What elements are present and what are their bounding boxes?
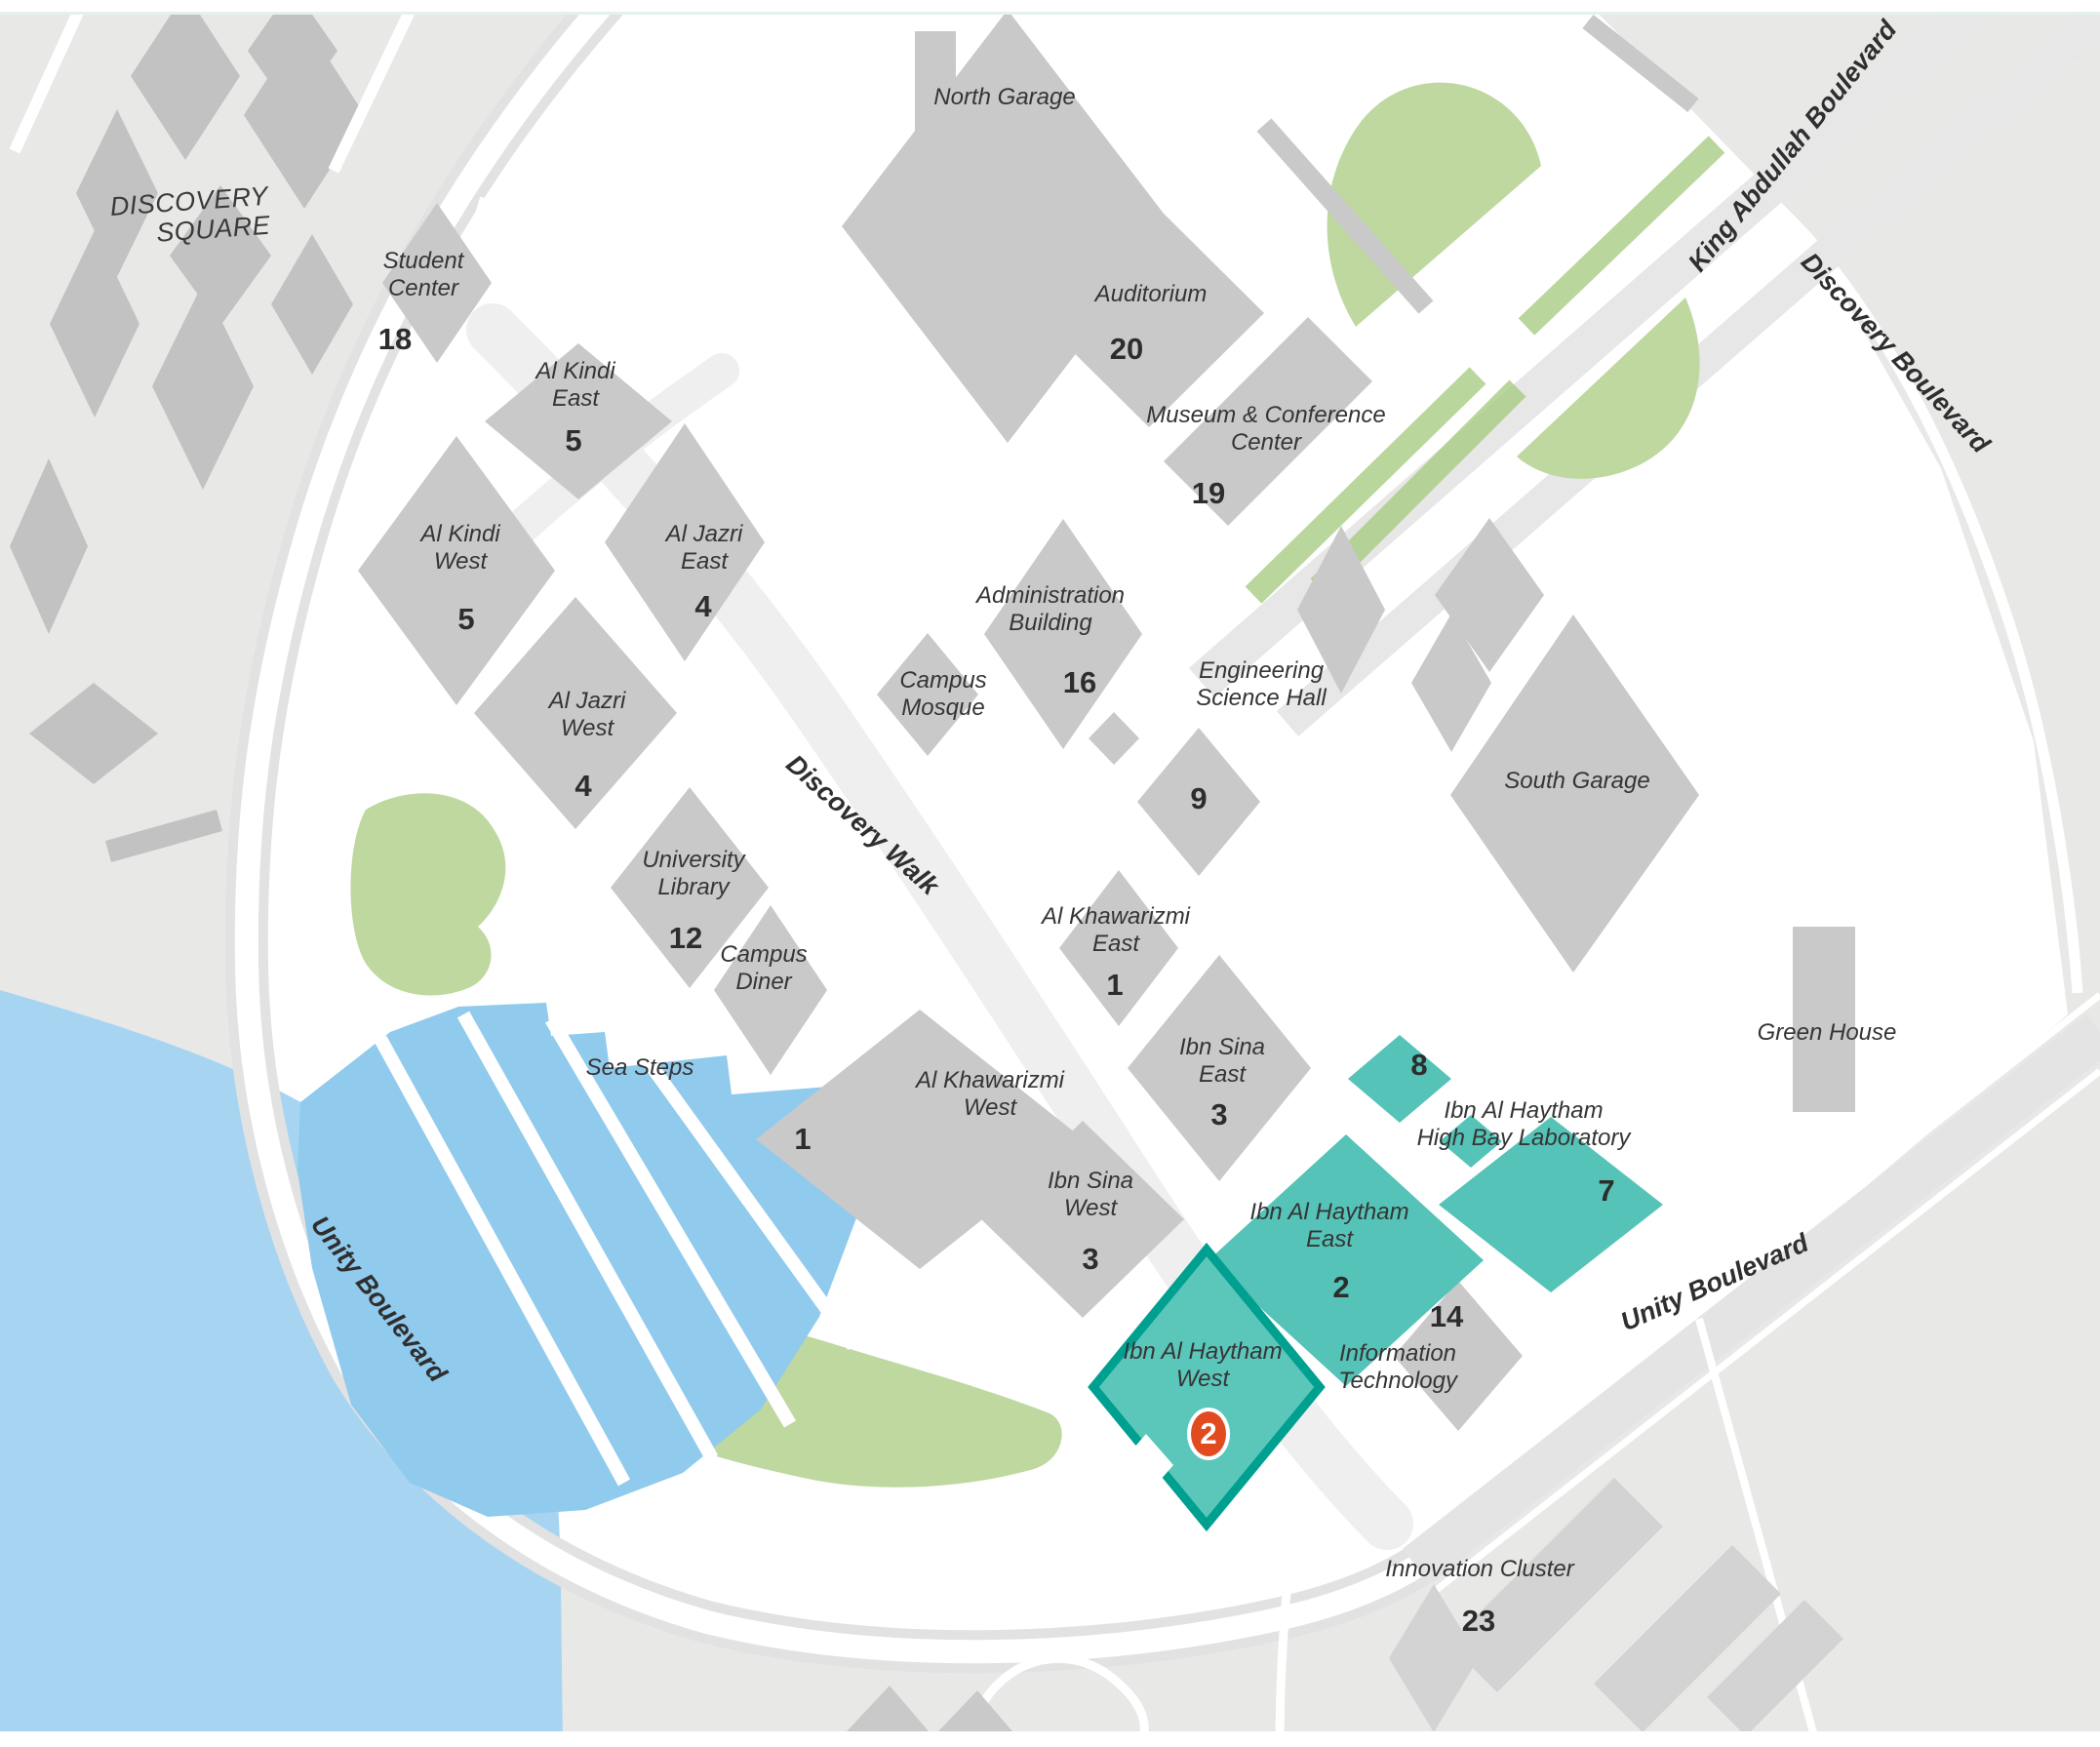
green-blob-west: [350, 793, 505, 995]
number-administration: 16: [1063, 665, 1096, 700]
label-museum-conference: Museum & Conference Center: [1146, 402, 1385, 457]
number-university-library: 12: [669, 921, 702, 956]
label-university-library: University Library: [642, 847, 744, 901]
number-student-center: 18: [378, 322, 412, 357]
number-engineering-science: 9: [1190, 781, 1207, 816]
label-engineering-science: Engineering Science Hall: [1196, 657, 1326, 712]
label-discovery-square: DISCOVERY SQUARE: [109, 182, 271, 252]
number-ibn-sina-east: 3: [1210, 1097, 1227, 1132]
number-high-bay-lab-7: 7: [1598, 1173, 1614, 1209]
bottom-margin: [0, 1731, 2100, 1747]
building-strip-north: [915, 31, 956, 212]
label-ibn-al-haytham-east: Ibn Al Haytham East: [1249, 1199, 1408, 1253]
selected-building-marker[interactable]: 2: [1187, 1408, 1230, 1460]
label-ibn-al-haytham-west: Ibn Al Haytham West: [1123, 1338, 1282, 1393]
label-green-house: Green House: [1758, 1019, 1897, 1047]
label-innovation-cluster: Innovation Cluster: [1385, 1556, 1573, 1583]
label-administration: Administration Building: [976, 582, 1125, 637]
number-al-khawarizmi-east: 1: [1106, 968, 1123, 1003]
number-auditorium: 20: [1110, 332, 1143, 367]
number-al-jazri-west: 4: [575, 769, 591, 804]
label-sea-steps: Sea Steps: [586, 1054, 694, 1082]
label-ibn-sina-west: Ibn Sina West: [1048, 1168, 1133, 1222]
number-museum-conference: 19: [1192, 476, 1225, 511]
label-al-jazri-west: Al Jazri West: [549, 688, 626, 742]
label-auditorium: Auditorium: [1095, 281, 1208, 308]
number-high-bay-lab-8: 8: [1410, 1048, 1427, 1083]
label-information-technology: Information Technology: [1338, 1340, 1457, 1395]
label-campus-diner: Campus Diner: [720, 941, 807, 996]
campus-map: DISCOVERY SQUARE King Abdullah Boulevard…: [0, 0, 2100, 1747]
label-north-garage: North Garage: [933, 84, 1075, 111]
label-al-khawarizmi-west: Al Khawarizmi West: [916, 1067, 1064, 1122]
label-ibn-sina-east: Ibn Sina East: [1179, 1034, 1265, 1089]
number-al-kindi-east: 5: [565, 423, 581, 458]
label-al-khawarizmi-east: Al Khawarizmi East: [1042, 903, 1190, 958]
number-al-kindi-west: 5: [457, 602, 474, 637]
top-border-line: [0, 12, 2100, 15]
number-information-technology: 14: [1430, 1299, 1463, 1334]
number-ibn-al-haytham-east: 2: [1332, 1270, 1349, 1305]
map-canvas: [0, 0, 2100, 1747]
label-al-kindi-west: Al Kindi West: [420, 521, 499, 576]
number-ibn-sina-west: 3: [1082, 1242, 1098, 1277]
label-south-garage: South Garage: [1504, 768, 1649, 795]
label-al-jazri-east: Al Jazri East: [666, 521, 743, 576]
number-al-khawarizmi-west: 1: [794, 1122, 811, 1157]
label-campus-mosque: Campus Mosque: [899, 667, 986, 722]
top-margin: [0, 0, 2100, 12]
number-innovation-cluster: 23: [1462, 1604, 1495, 1639]
label-al-kindi-east: Al Kindi East: [535, 358, 614, 413]
label-student-center: Student Center: [383, 248, 464, 302]
number-al-jazri-east: 4: [694, 589, 711, 624]
label-high-bay-lab: Ibn Al Haytham High Bay Laboratory: [1417, 1097, 1631, 1152]
